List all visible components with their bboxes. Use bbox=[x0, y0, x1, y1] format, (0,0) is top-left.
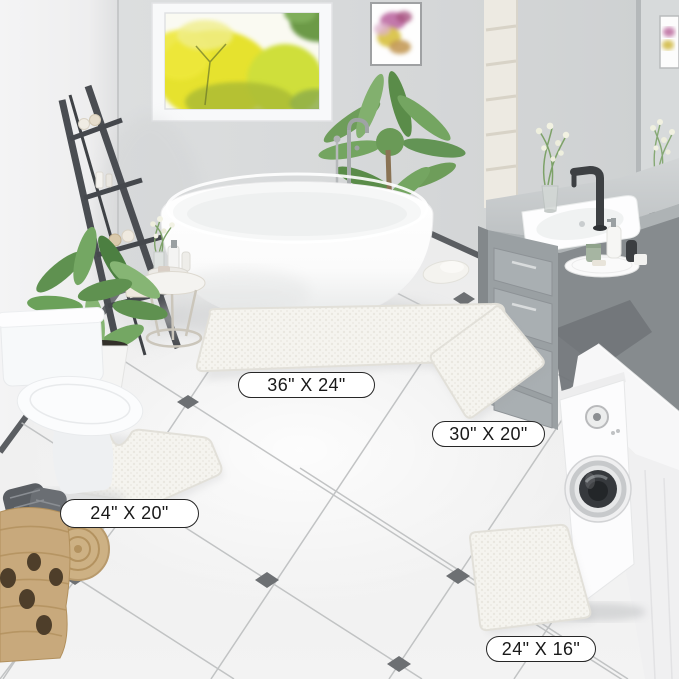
window bbox=[150, 2, 350, 122]
size-label-contour-rug: 24" X 20" bbox=[60, 499, 199, 528]
wall-art-frame bbox=[371, 3, 421, 65]
size-label-small-rug: 24" X 16" bbox=[486, 636, 596, 662]
toilet-base bbox=[53, 430, 113, 494]
toilet-tank bbox=[0, 307, 108, 387]
wall-shelf-niche bbox=[484, 0, 518, 208]
size-label-runner-rug: 30" X 20" bbox=[432, 421, 545, 447]
bathroom-product-photo: 36" X 24" 30" X 20" 24" X 20" 24" X 16" bbox=[0, 0, 679, 679]
sink-drain bbox=[579, 221, 585, 227]
size-label-large-rug: 36" X 24" bbox=[238, 372, 375, 398]
bathroom-scene bbox=[0, 0, 679, 679]
